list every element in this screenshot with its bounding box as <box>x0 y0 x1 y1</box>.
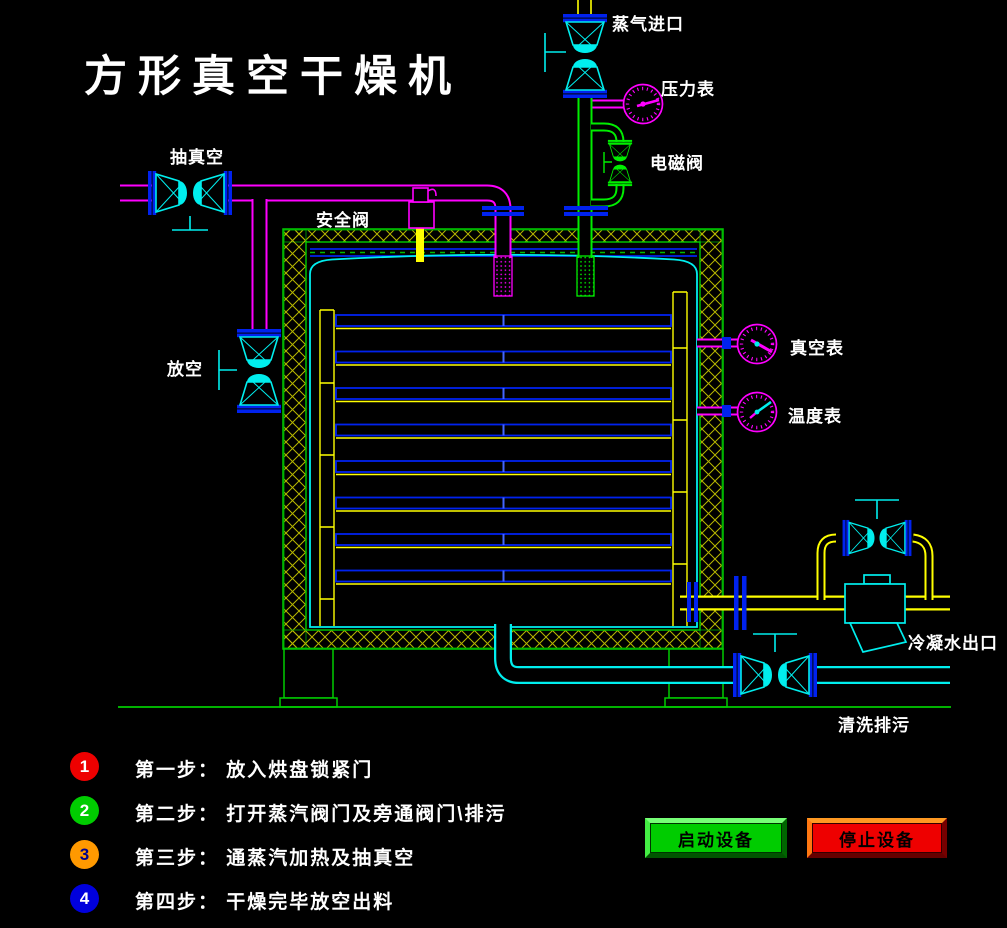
vacuum-gauge <box>738 325 777 364</box>
label-safety-valve: 安全阀 <box>316 206 370 231</box>
label-flush-drain: 清洗排污 <box>838 711 910 736</box>
step-text-2: 第二步： 打开蒸汽阀门及旁通阀门\排污 <box>135 799 507 826</box>
vacuum-suction-valve <box>148 171 232 230</box>
step-badge-3: 3 <box>70 840 99 869</box>
step-badge-2: 2 <box>70 796 99 825</box>
label-vent: 放空 <box>167 355 203 380</box>
drain-valve <box>733 634 817 697</box>
label-steam-inlet: 蒸气进口 <box>612 10 684 35</box>
vacuum-penetration-plug <box>494 256 512 296</box>
hmi-screen: 方形真空干燥机 蒸气进口 压力表 电磁阀 抽真空 安全阀 放空 真空表 温度表 … <box>0 0 1007 928</box>
step-row-1: 1 第一步： 放入烘盘锁紧门 <box>0 752 1007 784</box>
solenoid-valve <box>604 140 632 186</box>
bypass-valve-handle <box>855 500 899 519</box>
label-condensate-outlet: 冷凝水出口 <box>908 629 998 654</box>
vacuum-valve-handle <box>172 216 208 230</box>
temperature-gauge <box>738 393 777 432</box>
vent-valve-handle <box>219 350 237 390</box>
start-device-button[interactable]: 启动设备 <box>645 818 787 858</box>
steam-trap <box>845 575 906 652</box>
step-row-4: 4 第四步： 干燥完毕放空出料 <box>0 884 1007 916</box>
label-solenoid-valve: 电磁阀 <box>650 149 704 174</box>
pressure-gauge <box>624 85 663 124</box>
label-vacuum-gauge: 真空表 <box>790 334 844 359</box>
step-badge-4: 4 <box>70 884 99 913</box>
bypass-valve <box>843 500 912 556</box>
label-pressure-gauge: 压力表 <box>661 75 715 100</box>
steam-valve-handle <box>545 33 566 72</box>
solenoid-valve-handle <box>604 152 612 173</box>
vent-valve <box>219 329 281 413</box>
step-text-3: 第三步： 通蒸汽加热及抽真空 <box>135 843 415 870</box>
steam-penetration-plug <box>577 256 594 296</box>
label-temperature-gauge: 温度表 <box>788 402 842 427</box>
step-text-1: 第一步： 放入烘盘锁紧门 <box>135 755 373 782</box>
drain-valve-handle <box>753 634 797 652</box>
dryer-process-diagram <box>0 0 1007 928</box>
stop-device-button[interactable]: 停止设备 <box>807 818 947 858</box>
page-title: 方形真空干燥机 <box>84 42 462 104</box>
label-vacuum-suction: 抽真空 <box>170 143 224 168</box>
step-text-4: 第四步： 干燥完毕放空出料 <box>135 887 394 914</box>
steam-inlet-valve <box>545 14 607 98</box>
step-badge-1: 1 <box>70 752 99 781</box>
